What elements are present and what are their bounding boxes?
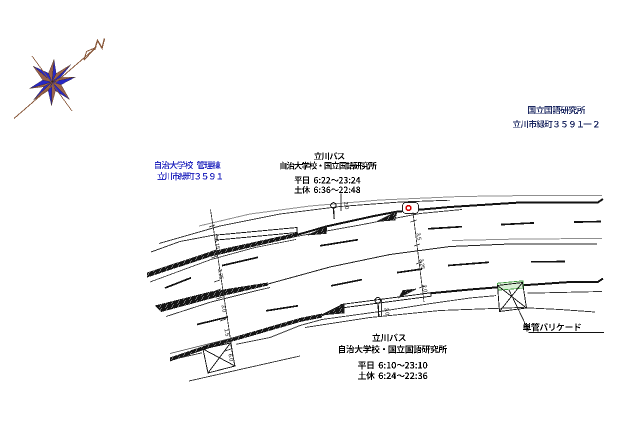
svg-text:2.0: 2.0 — [383, 307, 390, 316]
svg-text:3.25: 3.25 — [418, 258, 426, 270]
svg-text:2.0: 2.0 — [342, 201, 349, 210]
svg-text:2.0: 2.0 — [421, 284, 428, 293]
svg-text:6.15: 6.15 — [213, 238, 221, 250]
svg-text:1.5: 1.5 — [223, 328, 230, 337]
svg-text:6.0: 6.0 — [227, 353, 234, 362]
svg-text:3.25: 3.25 — [216, 268, 224, 280]
svg-text:3.5: 3.5 — [415, 232, 422, 241]
svg-text:3.0: 3.0 — [220, 304, 227, 313]
